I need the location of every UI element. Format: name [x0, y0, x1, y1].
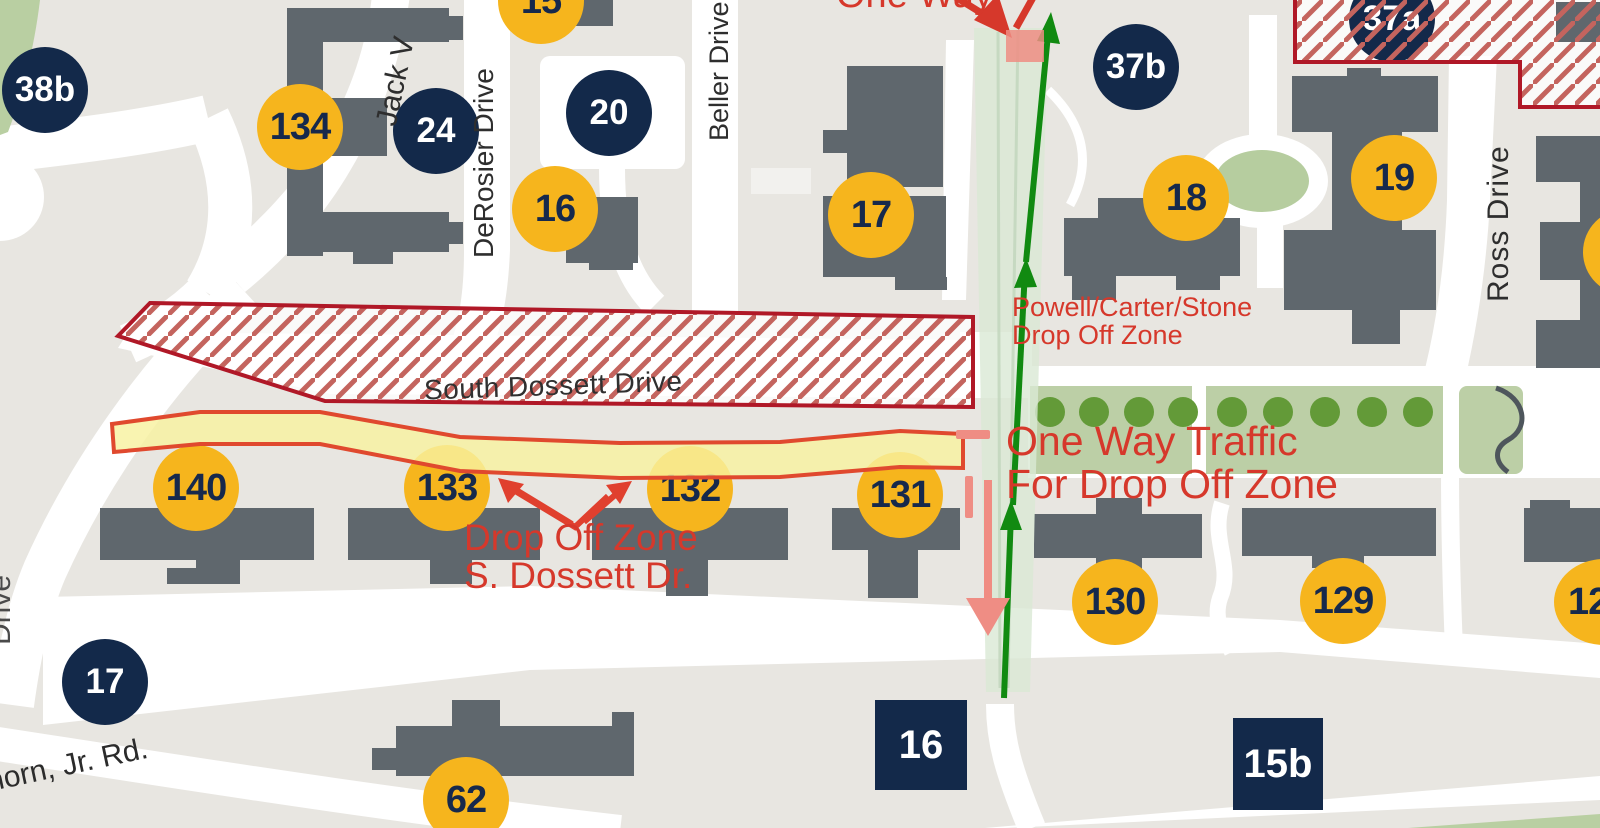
building-badge-129: 129: [1300, 558, 1386, 644]
dossett-dropoff-label: Drop Off Zone S. Dossett Dr.: [464, 519, 698, 596]
area-badge-17: 17: [62, 639, 148, 725]
street-label-derosier: DeRosier Drive: [468, 68, 500, 258]
street-label-beller: Beller Drive: [704, 1, 735, 141]
lot-badge-15b: 15b: [1233, 718, 1323, 810]
street-label-ross: Ross Drive: [1482, 145, 1516, 302]
lot-badge-16: 16: [875, 700, 967, 790]
dossett-dropoff-line2: S. Dossett Dr.: [464, 557, 698, 595]
powell-dropoff-label: Powell/Carter/Stone Drop Off Zone: [1012, 293, 1252, 349]
building-badge-134: 134: [257, 84, 343, 170]
powell-dropoff-line1: Powell/Carter/Stone: [1012, 293, 1252, 321]
building-62-footprint: [372, 700, 634, 776]
building-badge-17: 17: [828, 172, 914, 258]
map-base-layer: [0, 0, 1600, 828]
building-badge-18: 18: [1143, 155, 1229, 241]
campus-map: 15 134 16 17 18 19 140 133 132 131 130 1…: [0, 0, 1600, 828]
area-badge-38b: 38b: [2, 47, 88, 133]
building-badge-131: 131: [857, 452, 943, 538]
building-badge-140: 140: [153, 445, 239, 531]
one-way-traffic-line2: For Drop Off Zone: [1006, 463, 1338, 506]
building-128-footprint: [1524, 500, 1600, 562]
one-way-traffic-line1: One Way Traffic: [1006, 420, 1338, 463]
one-way-label: One Way: [836, 0, 993, 16]
lawn-bottom-right: [1408, 814, 1600, 828]
one-way-traffic-label: One Way Traffic For Drop Off Zone: [1006, 420, 1338, 505]
building-badge-19: 19: [1351, 135, 1437, 221]
street-label-left-edge: Drive: [0, 575, 18, 645]
powell-dropoff-line2: Drop Off Zone: [1012, 321, 1252, 349]
area-badge-20: 20: [566, 70, 652, 156]
building-badge-16: 16: [512, 166, 598, 252]
lawn-oval: [1215, 150, 1309, 212]
building-northeast-corner: [1556, 2, 1600, 42]
dossett-dropoff-line1: Drop Off Zone: [464, 519, 698, 557]
area-badge-37b: 37b: [1093, 24, 1179, 110]
building-badge-130: 130: [1072, 559, 1158, 645]
